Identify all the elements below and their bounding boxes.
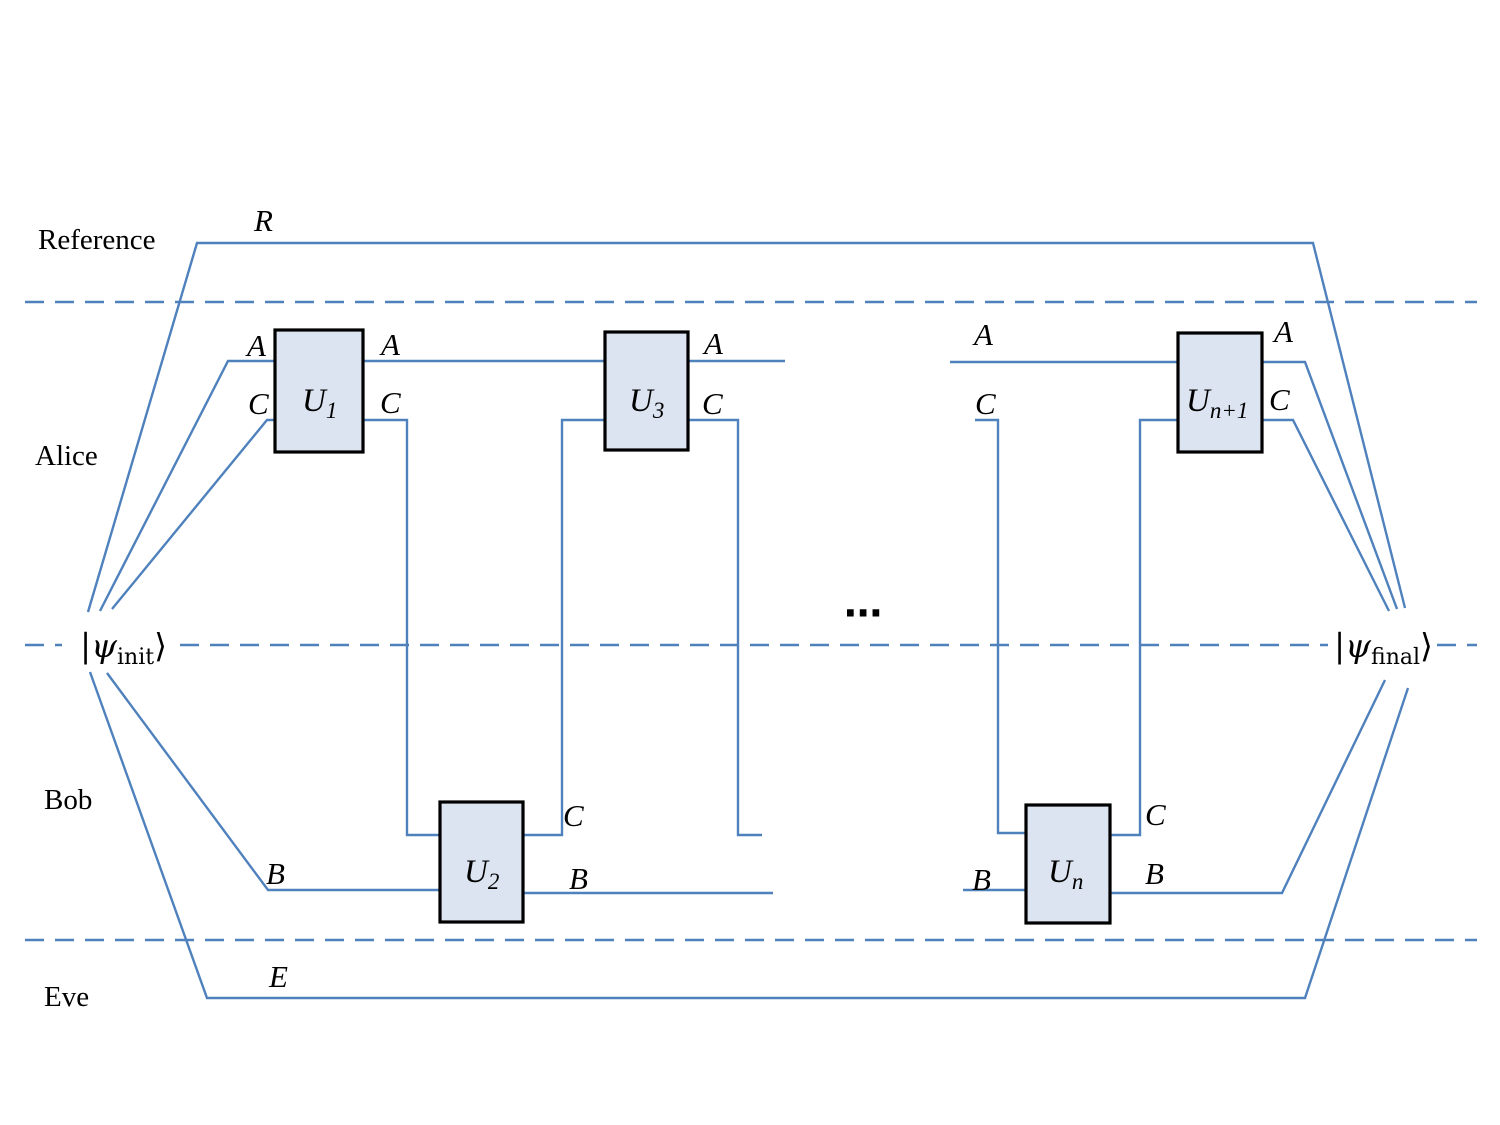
label-b-u2-in: B: [266, 856, 285, 891]
state-final: |ψfinal⟩: [1334, 626, 1433, 670]
wire-c-u2-u3: [523, 420, 605, 835]
label-b-u2-out: B: [569, 861, 588, 896]
wire-c-down-un: [975, 420, 1026, 833]
wire-c-u1-u2: [363, 420, 440, 835]
label-r: R: [253, 203, 273, 238]
label-b-un-out: B: [1145, 856, 1164, 891]
ellipsis: ⋯: [844, 591, 882, 635]
label-c-u2-out: C: [563, 798, 584, 833]
region-label-alice: Alice: [35, 440, 98, 472]
label-e: E: [268, 959, 288, 994]
label-a-un1-in: A: [972, 317, 994, 352]
wire-c-un1-final: [1262, 420, 1389, 611]
wire-c-un-un1: [1110, 420, 1178, 835]
label-a-u1-in: A: [245, 328, 267, 363]
label-c-u1-out: C: [380, 385, 401, 420]
label-a-un1-out: A: [1272, 314, 1294, 349]
region-label-reference: Reference: [38, 224, 156, 256]
label-c-un1-out: C: [1269, 382, 1290, 417]
label-c-u1-in: C: [248, 386, 269, 421]
quantum-circuit-diagram: U1 U2 U3 Un Un+1 Reference Alice Bob Eve…: [0, 0, 1500, 1125]
region-label-eve: Eve: [44, 981, 89, 1013]
region-label-bob: Bob: [44, 784, 92, 816]
wire-c-u3-down: [688, 420, 762, 835]
label-c-un-out: C: [1145, 797, 1166, 832]
label-b-un-in: B: [972, 862, 991, 897]
label-c-right-in: C: [975, 386, 996, 421]
label-c-u3-out: C: [702, 386, 723, 421]
label-a-u1-out: A: [379, 327, 401, 362]
state-init: |ψinit⟩: [80, 626, 167, 670]
label-a-u3-out: A: [702, 326, 724, 361]
